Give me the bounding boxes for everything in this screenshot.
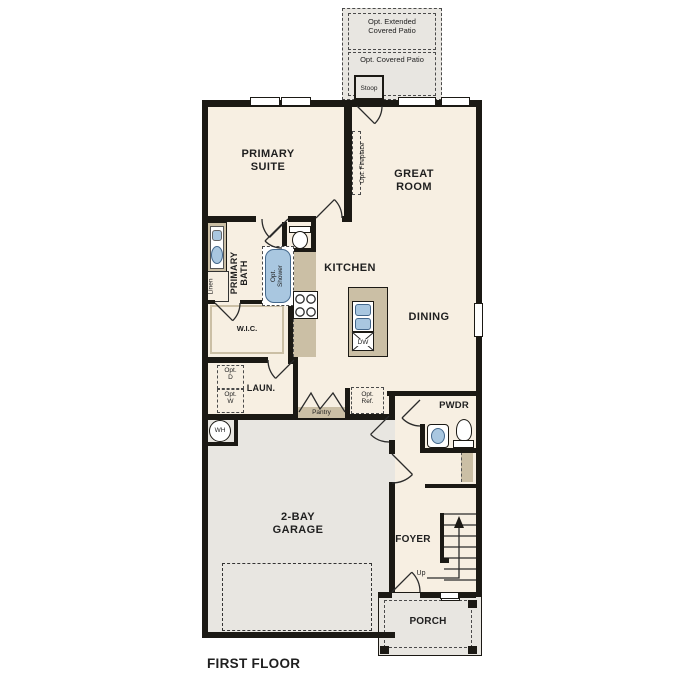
wall-suite-bottom-1: [202, 216, 256, 222]
great-room-label: GREAT ROOM: [370, 168, 458, 193]
porch-post-br: [468, 646, 477, 654]
opt-washer-label: Opt. W: [217, 391, 244, 406]
window-dining: [474, 303, 483, 337]
dining-label: DINING: [398, 311, 460, 324]
window-great-1: [398, 97, 436, 106]
pwdr-label: PWDR: [432, 401, 476, 412]
kitchen-sink-basin-1: [355, 304, 371, 316]
wall-suite-bottom-3: [342, 216, 352, 222]
primary-bath-label: PRIMARY BATH: [229, 243, 251, 303]
floor-plan: Opt. Extended Covered Patio Opt. Covered…: [0, 0, 687, 687]
porch-post-tr: [468, 600, 477, 608]
opt-fireplace-label: Opt. Fireplace: [359, 130, 369, 196]
wall-porch-top-1: [378, 592, 392, 598]
coat-closet-shelf: [461, 452, 473, 482]
kitchen-label: KITCHEN: [310, 262, 390, 275]
window-great-2: [441, 97, 470, 106]
window-suite-2: [281, 97, 311, 106]
porch-step: [440, 592, 459, 599]
wall-garage-bottom: [202, 632, 395, 638]
porch-label: PORCH: [404, 616, 452, 628]
wall-right: [476, 100, 482, 597]
primary-suite-label: PRIMARY SUITE: [218, 148, 318, 173]
wall-stair-left: [440, 513, 444, 563]
window-suite-1: [250, 97, 280, 106]
opt-extended-patio-label: Opt. Extended Covered Patio: [348, 18, 436, 35]
pantry-label: Pantry: [298, 409, 345, 416]
vanity-faucet-icon: [212, 230, 222, 241]
wic-label: W.I.C.: [215, 325, 279, 334]
wall-pwdr-bottom: [420, 448, 476, 453]
dw-label: DW: [354, 339, 372, 346]
kitchen-sink-basin-2: [355, 318, 371, 330]
wall-wic-bottom: [202, 357, 268, 363]
wall-wh-nook-bottom: [206, 442, 238, 446]
stoop-label: Stoop: [354, 85, 384, 92]
toilet-bath-bowl: [292, 231, 308, 249]
water-heater-label: WH: [209, 427, 231, 434]
opt-shower-label: Opt. Shower: [270, 251, 286, 301]
garage-door-outline: [222, 563, 372, 631]
bath-sink: [211, 246, 223, 264]
up-label: Up: [412, 570, 430, 578]
garage-label: 2-BAY GARAGE: [248, 511, 348, 536]
foyer-label: FOYER: [389, 534, 437, 546]
opt-ref-label: Opt. Ref.: [351, 391, 384, 406]
porch-post-bl: [380, 646, 389, 654]
opt-dryer-label: Opt. D: [217, 367, 244, 382]
opt-covered-patio-label: Opt. Covered Patio: [348, 56, 436, 65]
wall-top: [202, 100, 482, 107]
toilet-pwdr-bowl: [456, 419, 472, 441]
kitchen-counter-lower: [293, 319, 316, 357]
wall-suite-great: [344, 100, 352, 220]
toilet-pwdr-tank: [453, 440, 474, 448]
linen-label: Linen: [208, 272, 217, 302]
wall-dining-bottom: [387, 391, 476, 396]
wall-closet-bottom: [425, 484, 476, 488]
wall-foyer-left-2: [389, 440, 395, 454]
pwdr-sink: [431, 428, 445, 444]
stove: [293, 291, 318, 319]
wall-left: [202, 100, 208, 638]
laundry-label: LAUN.: [240, 383, 282, 393]
plan-title: FIRST FLOOR: [207, 656, 347, 672]
